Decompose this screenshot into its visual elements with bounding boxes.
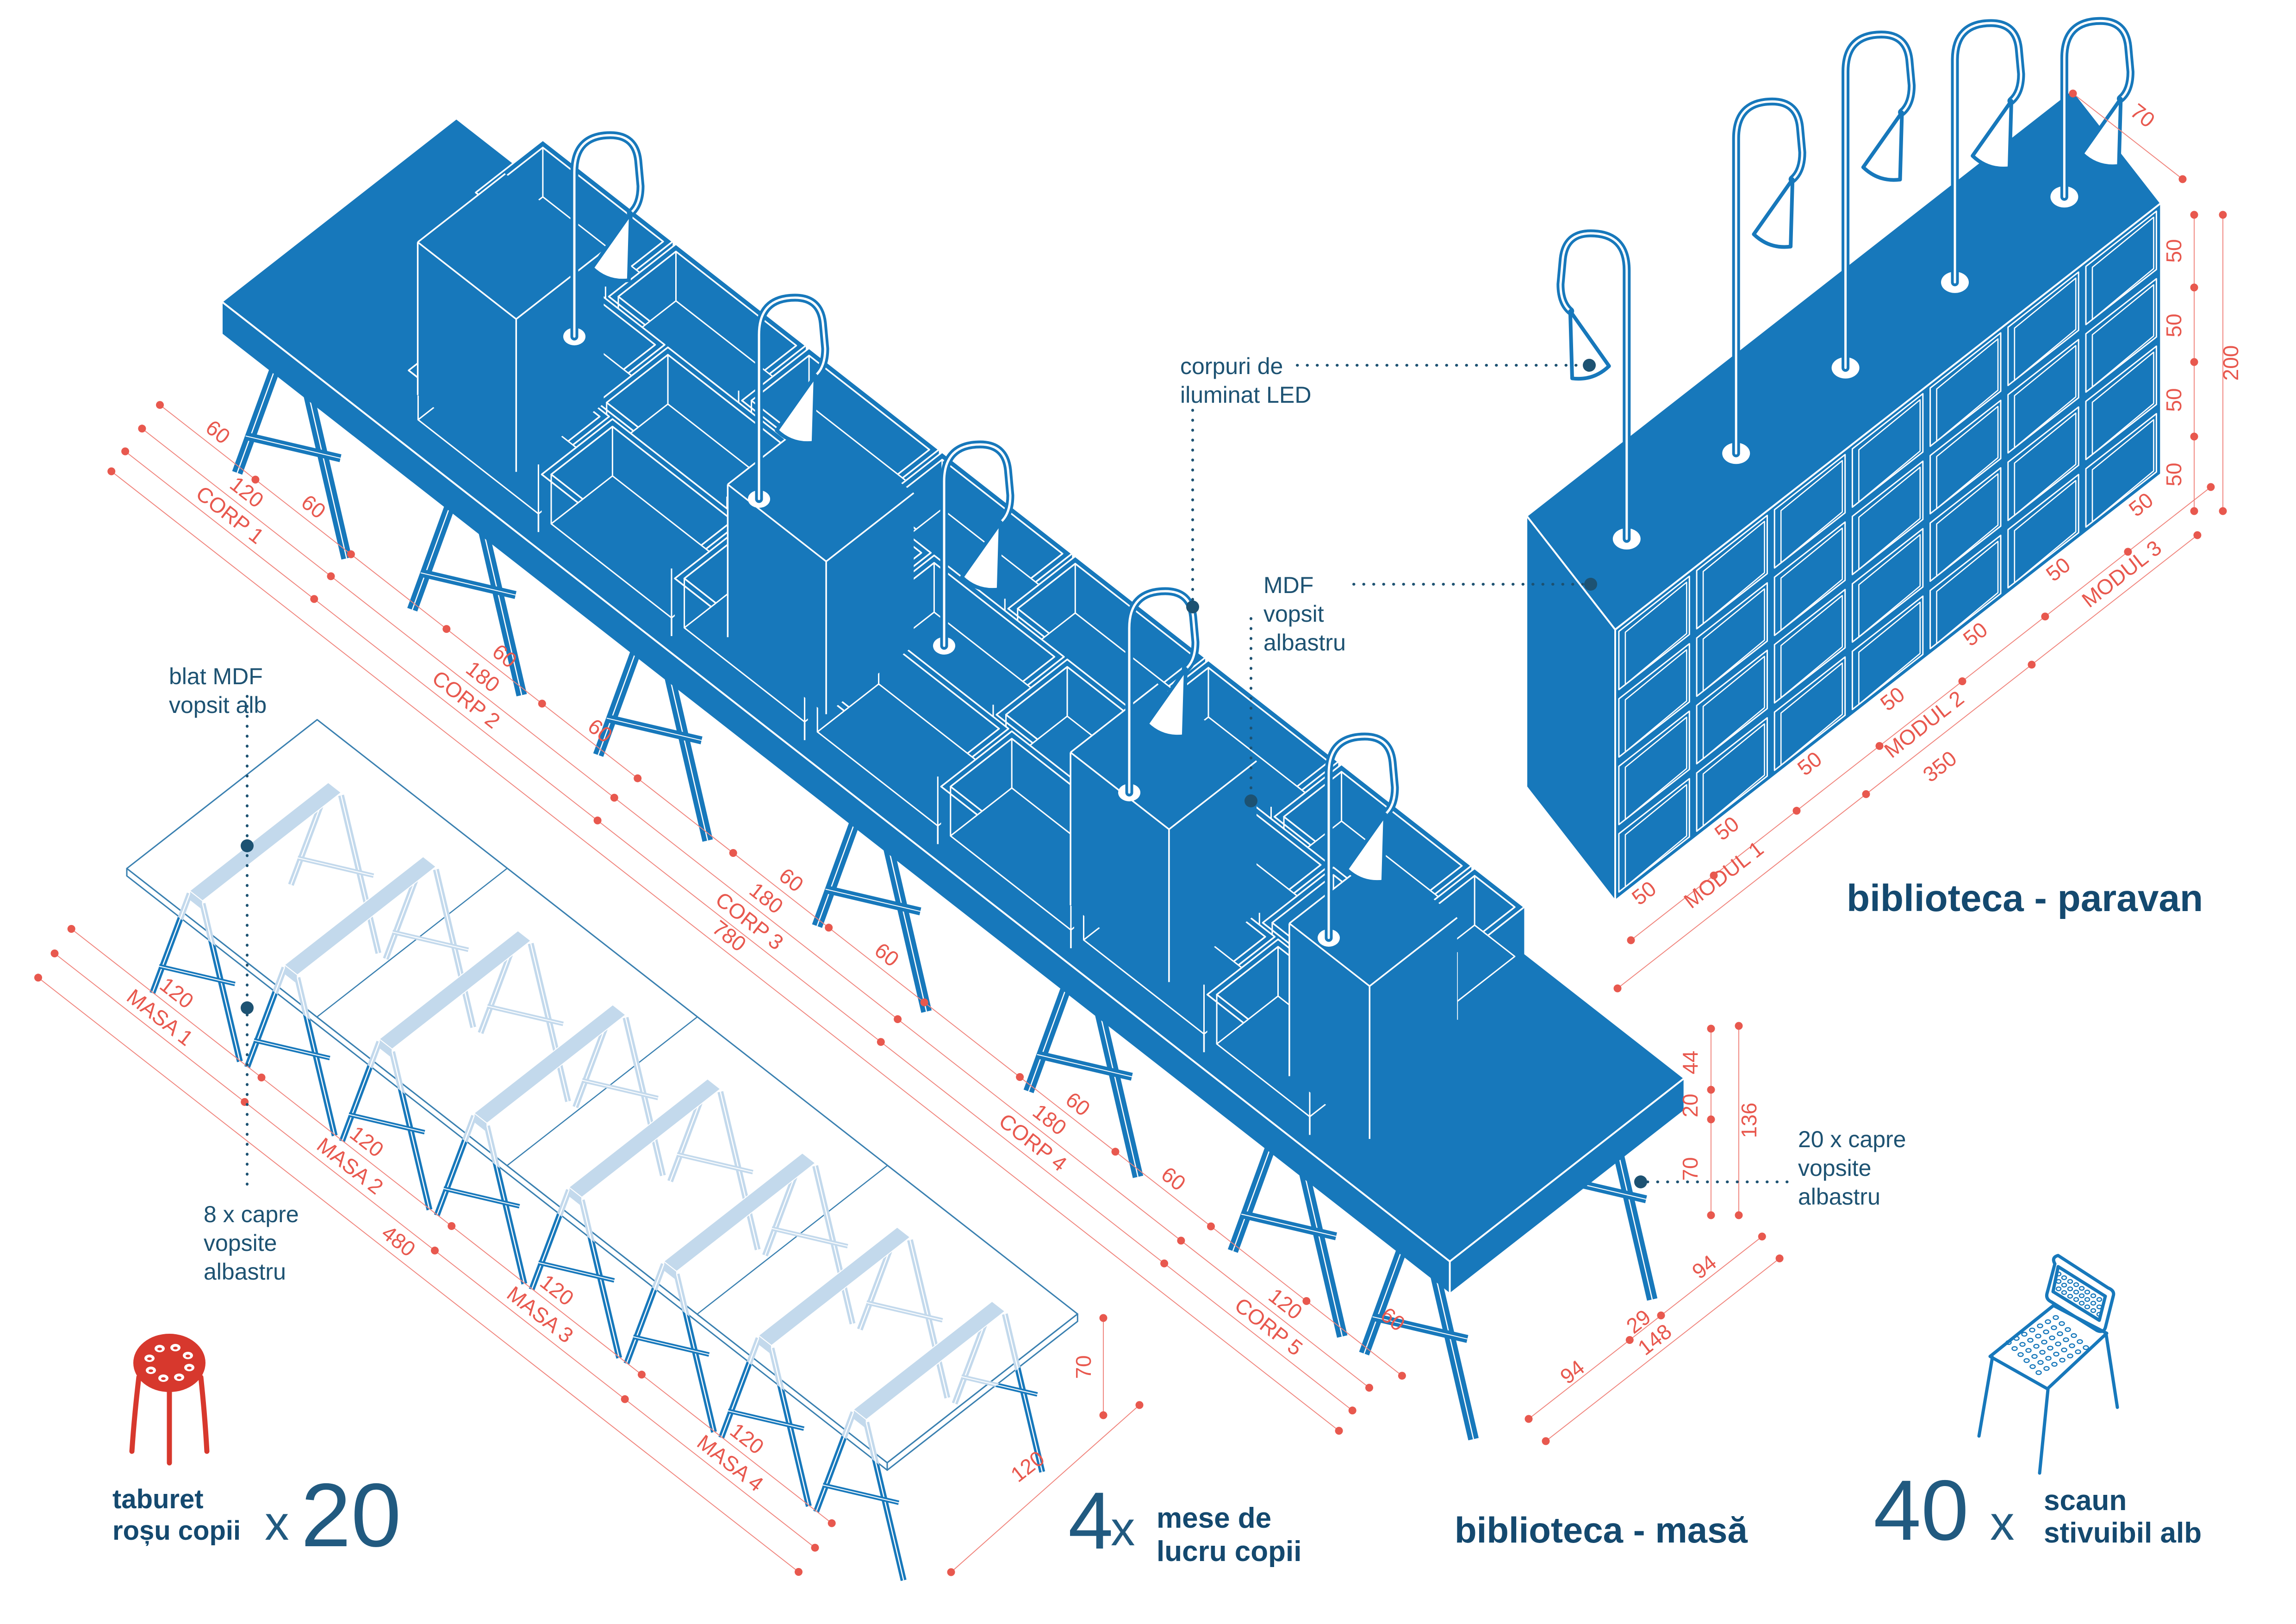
svg-text:iluminat LED: iluminat LED (1180, 382, 1311, 408)
svg-text:60: 60 (201, 415, 235, 449)
svg-text:lucru copii: lucru copii (1157, 1536, 1301, 1568)
svg-text:roșu copii: roșu copii (112, 1516, 241, 1546)
svg-text:60: 60 (1061, 1087, 1095, 1120)
svg-text:8 x capre: 8 x capre (204, 1201, 299, 1227)
svg-text:200: 200 (2219, 345, 2243, 381)
svg-text:480: 480 (377, 1220, 420, 1261)
svg-text:MODUL 3: MODUL 3 (2077, 535, 2166, 612)
svg-text:vopsite: vopsite (1798, 1155, 1871, 1181)
svg-text:20: 20 (301, 1465, 401, 1566)
svg-text:taburet: taburet (112, 1484, 204, 1514)
svg-text:albastru: albastru (204, 1259, 286, 1285)
svg-text:MDF: MDF (1263, 572, 1313, 598)
svg-text:biblioteca - masă: biblioteca - masă (1455, 1510, 1748, 1550)
svg-text:biblioteca - paravan: biblioteca - paravan (1847, 877, 2203, 919)
svg-text:albastru: albastru (1263, 630, 1346, 656)
svg-text:blat MDF: blat MDF (169, 663, 263, 689)
svg-text:stivuibil alb: stivuibil alb (2044, 1517, 2202, 1549)
svg-text:44: 44 (1678, 1050, 1702, 1074)
svg-text:70: 70 (1678, 1157, 1702, 1181)
svg-text:60: 60 (1157, 1162, 1190, 1195)
svg-text:60: 60 (870, 938, 903, 971)
svg-text:x: x (1990, 1496, 2015, 1550)
svg-text:50: 50 (2162, 462, 2186, 486)
svg-text:x: x (265, 1496, 289, 1550)
svg-text:albastru: albastru (1798, 1184, 1880, 1210)
svg-text:20: 20 (1678, 1093, 1702, 1117)
svg-text:scaun: scaun (2044, 1485, 2127, 1517)
svg-text:corpuri de: corpuri de (1180, 353, 1283, 379)
svg-text:136: 136 (1737, 1103, 1761, 1138)
svg-text:94: 94 (1556, 1355, 1589, 1388)
svg-text:vopsite: vopsite (204, 1230, 277, 1256)
svg-text:MODUL 1: MODUL 1 (1679, 836, 1768, 913)
svg-text:50: 50 (2162, 388, 2186, 412)
svg-text:60: 60 (775, 863, 808, 896)
svg-text:70: 70 (2126, 99, 2159, 132)
svg-text:vopsit: vopsit (1263, 601, 1324, 627)
svg-text:mese de: mese de (1157, 1502, 1271, 1534)
svg-text:94: 94 (1687, 1250, 1721, 1283)
svg-text:4: 4 (1068, 1476, 1113, 1566)
svg-text:120: 120 (1006, 1446, 1049, 1487)
svg-text:50: 50 (2162, 239, 2186, 262)
svg-text:60: 60 (297, 490, 330, 523)
svg-text:350: 350 (1918, 746, 1961, 787)
svg-text:20 x capre: 20 x capre (1798, 1126, 1906, 1152)
svg-text:70: 70 (1071, 1355, 1095, 1379)
svg-text:50: 50 (2162, 313, 2186, 337)
svg-text:40: 40 (1873, 1463, 1969, 1558)
svg-text:x: x (1111, 1502, 1135, 1556)
svg-text:vopsit alb: vopsit alb (169, 692, 267, 718)
